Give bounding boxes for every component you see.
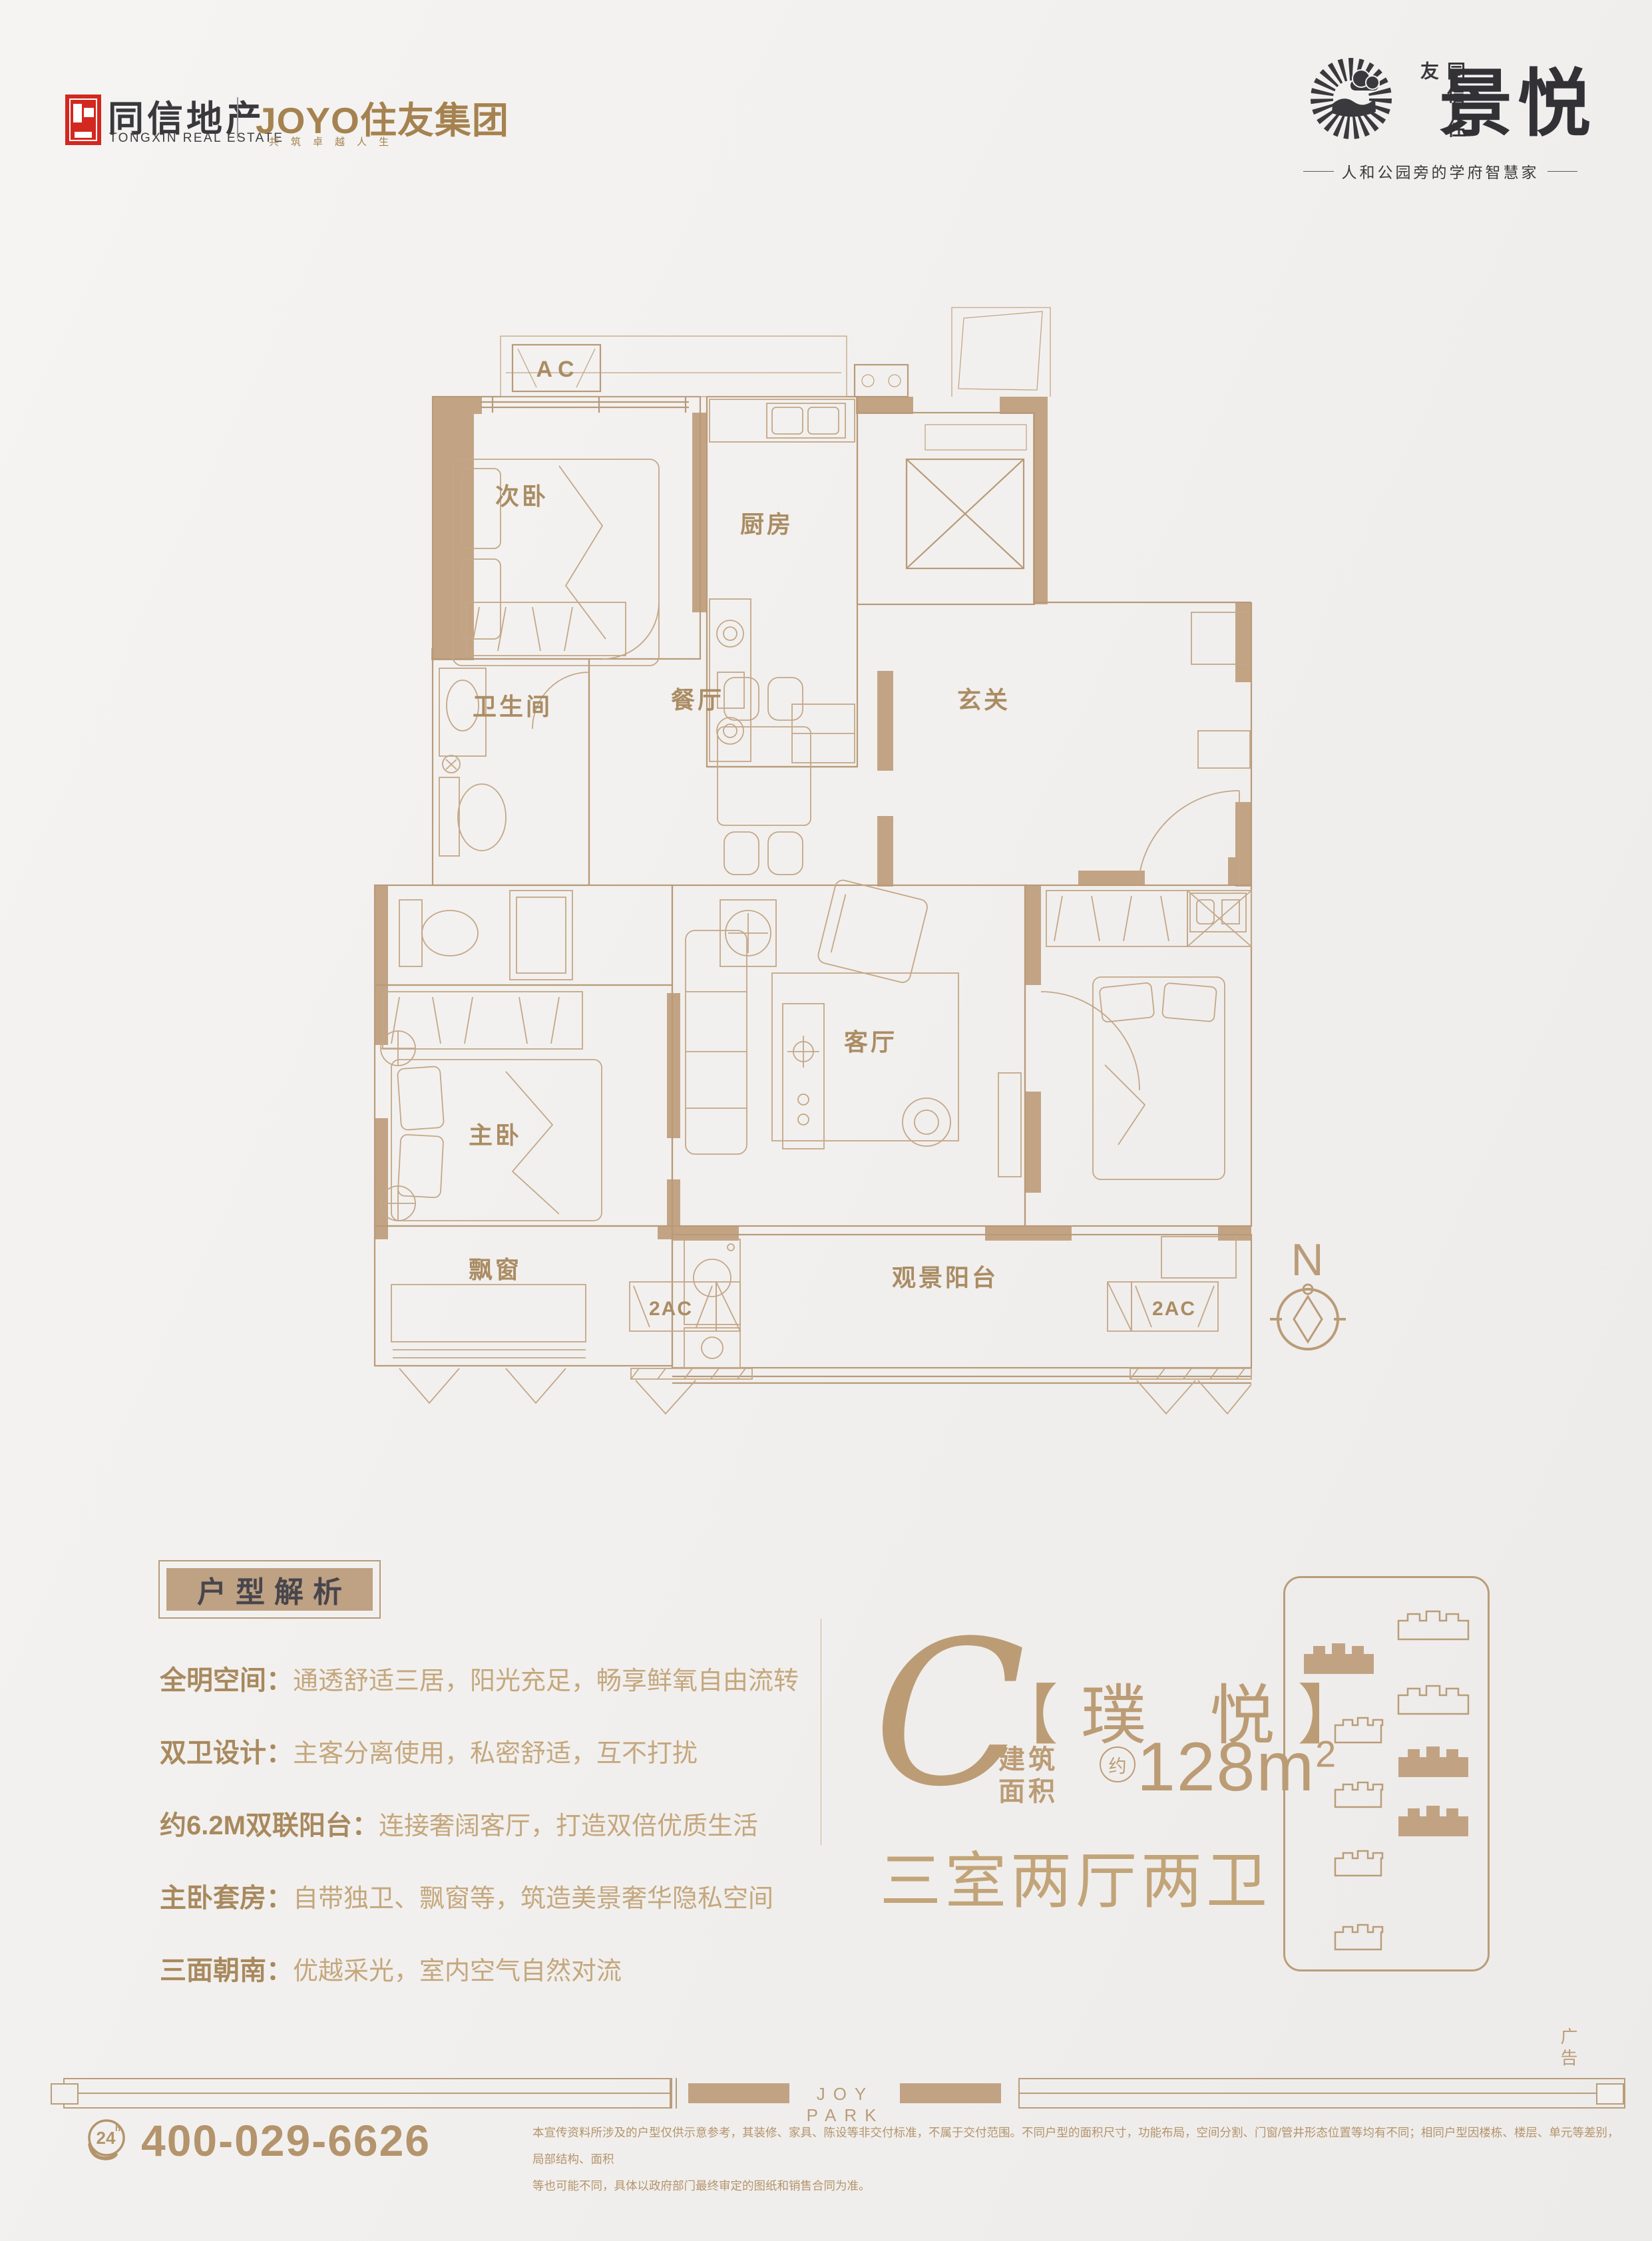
label-bathroom: 卫生间 — [473, 693, 552, 720]
disclaimer-line-2: 等也可能不同，具体以政府部门最终审定的图纸和销售合同为准。 — [532, 2172, 1629, 2199]
unit-layout: 三室两厅两卫 — [880, 1832, 1271, 1920]
label-ac: AC — [536, 357, 579, 382]
header-divider — [237, 97, 238, 138]
footer-bar-divider — [671, 2078, 677, 2109]
north-compass-icon: N — [1270, 1235, 1346, 1349]
site-plan-buildings — [1285, 1578, 1488, 1969]
sunburst-logo-icon — [1306, 53, 1396, 144]
project-name: 景悦 — [1439, 44, 1596, 150]
label-dining: 餐厅 — [671, 686, 724, 713]
balcony-detail — [630, 1237, 1251, 1414]
analysis-item: 主卧套房：自带独卫、飘窗等，筑造美景奢华隐私空间 — [160, 1876, 845, 1915]
unit-area-approx: 约 — [1100, 1746, 1136, 1782]
analysis-title-box: 户型解析 — [158, 1560, 381, 1619]
disclaimer-line-1: 本宣传资料所涉及的户型仅供示意参考，其装修、家具、陈设等非交付标准，不属于交付范… — [532, 2119, 1629, 2172]
bay-window-detail — [391, 1285, 586, 1403]
tagline-rule-right — [1548, 171, 1578, 172]
label-2ac-right: 2AC — [1152, 1298, 1196, 1320]
building-footprint — [1335, 1925, 1382, 1949]
analysis-item: 约6.2M双联阳台：连接奢阔客厅，打造双倍优质生活 — [160, 1804, 845, 1842]
master-suite-furniture — [381, 891, 602, 1221]
svg-text:24: 24 — [97, 2128, 116, 2148]
analysis-item: 三面朝南：优越采光，室内空气自然对流 — [160, 1949, 845, 1987]
label-living: 客厅 — [844, 1028, 897, 1056]
secondary-bedroom-furniture — [453, 459, 659, 666]
project-tagline: 人和公园旁的学府智慧家 — [1303, 160, 1577, 182]
label-kitchen: 厨房 — [740, 510, 793, 538]
floor-plan: N 次卧 厨房 卫生间 餐厅 玄关 客厅 主卧 飘窗 观景阳台 AC 2AC 2… — [359, 293, 1371, 1424]
building-footprint-filled — [1398, 1806, 1468, 1836]
label-2ac-left: 2AC — [649, 1298, 693, 1320]
phone-24h-icon: 24 h — [85, 2118, 130, 2163]
kitchen-furniture — [710, 399, 855, 763]
disclaimer: 本宣传资料所涉及的户型仅供示意参考，其装修、家具、陈设等非交付标准，不属于交付范… — [532, 2119, 1629, 2199]
north-label: N — [1291, 1235, 1323, 1285]
tagline-rule-left — [1303, 171, 1334, 172]
site-plan — [1283, 1576, 1490, 1971]
living-furniture — [686, 879, 1021, 1177]
building-footprint — [1335, 1782, 1382, 1807]
footer-bar-cap-left — [51, 2083, 79, 2105]
building-footprint-filled — [1398, 1746, 1468, 1777]
building-footprint — [1335, 1851, 1382, 1876]
footer-bar-fill-left — [688, 2083, 789, 2103]
right-bedroom-furniture — [1041, 891, 1251, 1179]
joyo-logo-slogan: 共筑卓越人生 — [269, 134, 401, 148]
building-footprint — [1398, 1611, 1468, 1639]
label-bay-window: 飘窗 — [469, 1256, 522, 1283]
footer-bar-right — [1018, 2078, 1625, 2109]
analysis-item: 双卫设计：主客分离使用，私密舒适，互不打扰 — [160, 1731, 845, 1770]
tongxin-logo-icon — [65, 95, 101, 145]
footer-bar-cap-right — [1596, 2083, 1624, 2105]
phone-number: 400-029-6626 — [141, 2115, 431, 2166]
label-secondary-bedroom: 次卧 — [495, 483, 548, 510]
dining-furniture — [718, 678, 811, 875]
analysis-title: 户型解析 — [166, 1568, 373, 1611]
building-footprint — [1335, 1718, 1382, 1742]
ad-label: 广告 — [1556, 2027, 1581, 2070]
analysis-list: 全明空间：通透舒适三居，阳光充足，畅享鲜氧自由流转 双卫设计：主客分离使用，私密… — [160, 1659, 845, 2021]
footer-bar-fill-right — [900, 2083, 1001, 2103]
analysis-item: 全明空间：通透舒适三居，阳光充足，畅享鲜氧自由流转 — [160, 1659, 845, 1697]
unit-area-label: 建筑 面积 — [998, 1744, 1058, 1808]
svg-text:h: h — [115, 2123, 120, 2133]
vertical-divider — [821, 1619, 821, 1845]
room-outlines — [375, 397, 1251, 1383]
building-footprint-filled — [1304, 1643, 1374, 1674]
building-footprint — [1398, 1686, 1468, 1714]
poster-page: 同信地产 TONGXIN REAL ESTATE JOYO住友集团 共筑卓越人生… — [0, 0, 1652, 2241]
label-balcony: 观景阳台 — [892, 1264, 998, 1291]
label-foyer: 玄关 — [957, 686, 1010, 713]
footer-bar-left — [63, 2078, 671, 2109]
label-master-bedroom: 主卧 — [469, 1121, 522, 1149]
